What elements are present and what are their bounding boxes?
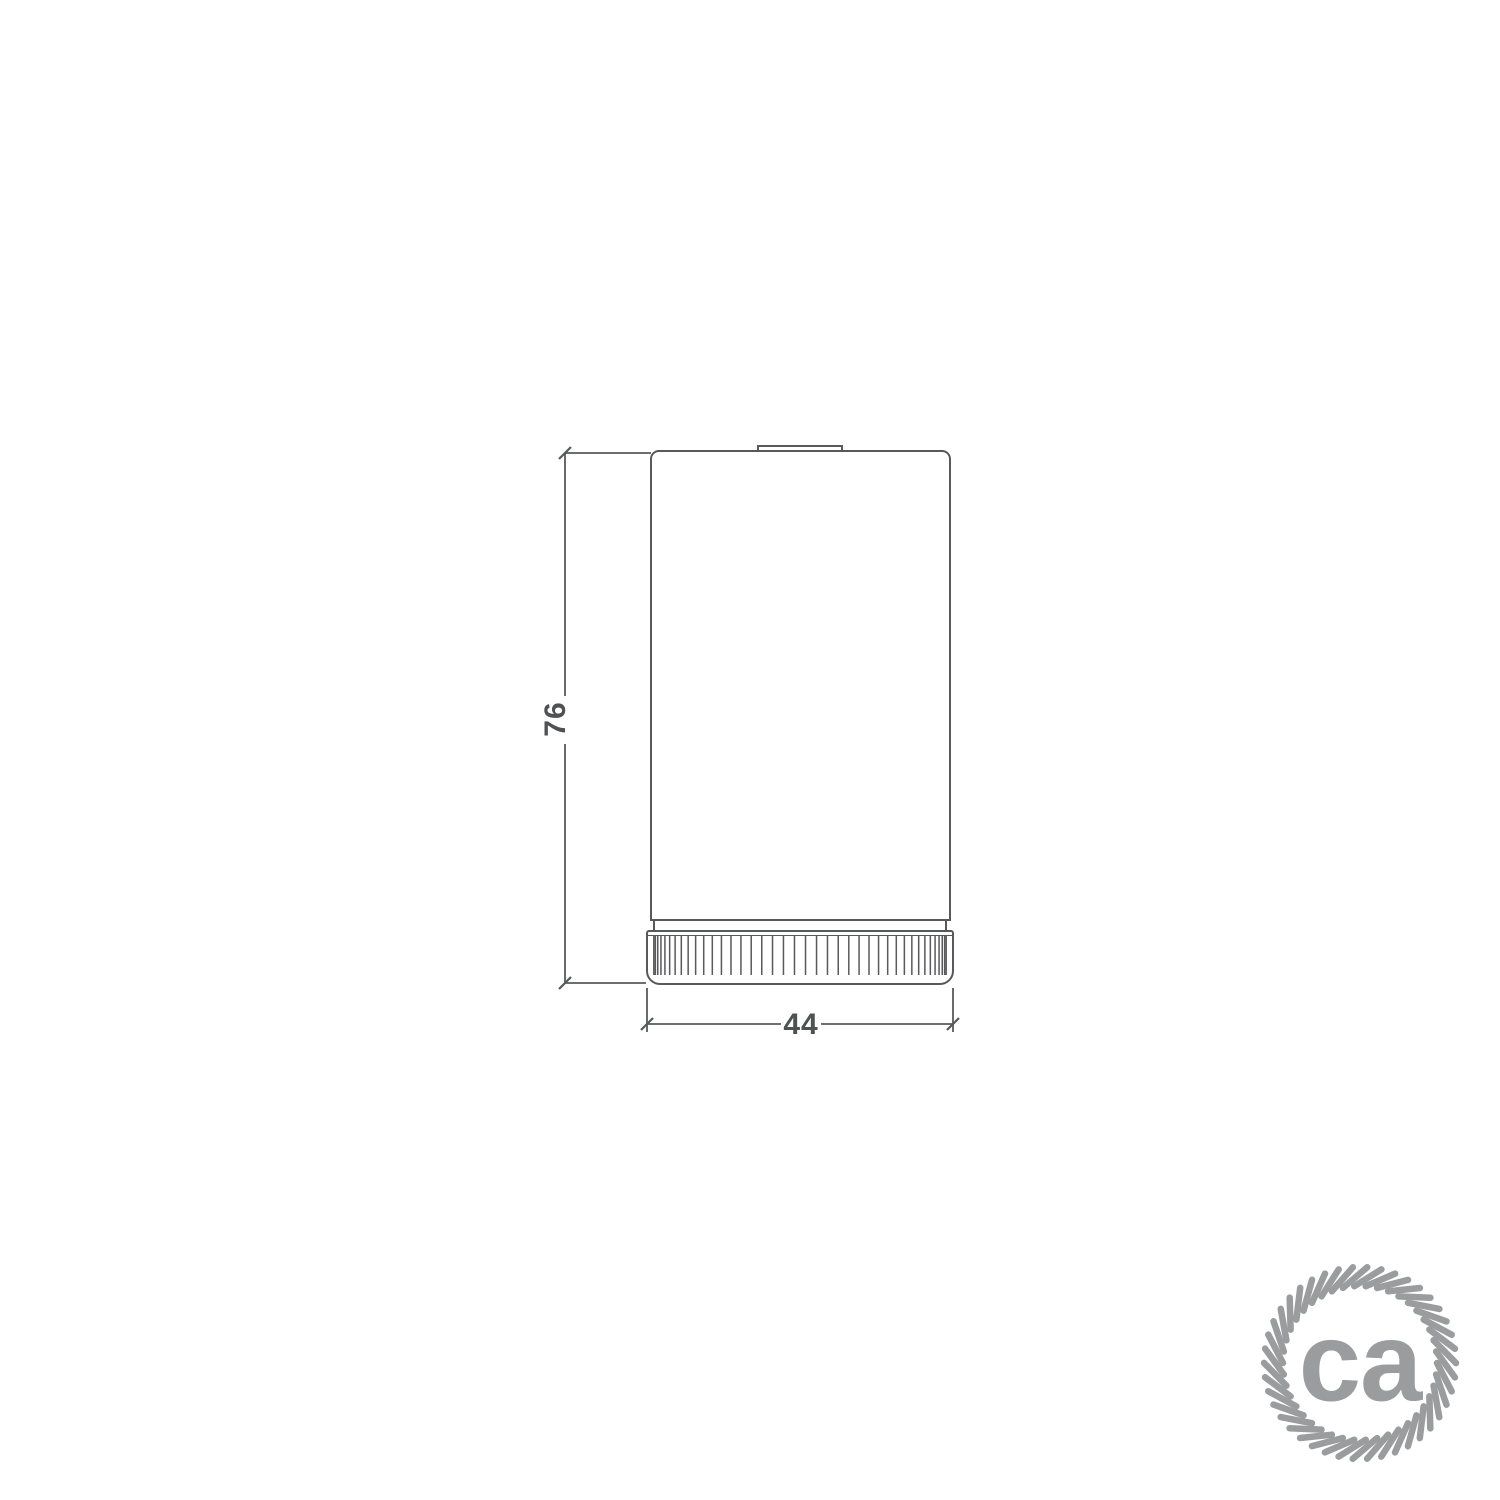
drawing-canvas: 76 44 ca [0,0,1500,1500]
knurled-ring [646,930,954,985]
height-dimension-lines [559,447,651,989]
knurl-ribs [648,932,952,983]
brand-logo-text: ca [1299,1307,1422,1419]
width-dimension-label: 44 [783,1010,818,1040]
brand-logo: ca [1255,1258,1465,1468]
height-dimension-label: 76 [541,701,571,736]
cylinder-body [650,450,951,921]
